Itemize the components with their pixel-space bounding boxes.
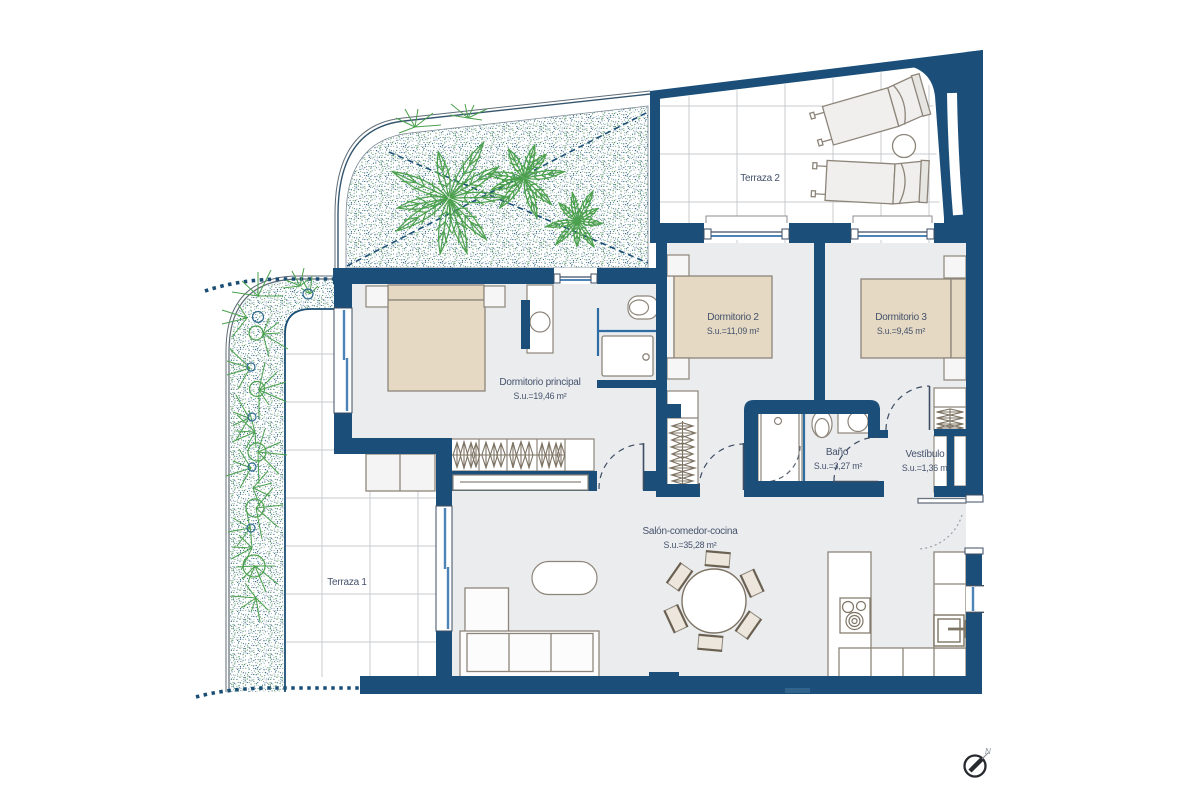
svg-text:Dormitorio 3: Dormitorio 3 <box>875 312 927 323</box>
svg-text:Terraza 2: Terraza 2 <box>740 173 780 184</box>
svg-text:Vestíbulo: Vestíbulo <box>906 449 946 460</box>
svg-text:S.u.=1,36 m²: S.u.=1,36 m² <box>902 463 950 473</box>
svg-text:S.u.=11,09 m²: S.u.=11,09 m² <box>707 326 760 336</box>
svg-text:Dormitorio 2: Dormitorio 2 <box>707 312 759 323</box>
svg-text:Baño: Baño <box>826 447 849 458</box>
svg-text:N: N <box>985 747 991 756</box>
svg-text:S.u.=9,45 m²: S.u.=9,45 m² <box>877 326 925 336</box>
svg-text:Dormitorio principal: Dormitorio principal <box>499 377 580 388</box>
svg-text:S.u.=3,27 m²: S.u.=3,27 m² <box>814 461 862 471</box>
svg-text:Salón-comedor-cocina: Salón-comedor-cocina <box>642 526 738 537</box>
svg-text:S.u.=19,46 m²: S.u.=19,46 m² <box>514 391 567 401</box>
svg-text:Terraza 1: Terraza 1 <box>327 577 367 588</box>
svg-text:S.u.=35,28 m²: S.u.=35,28 m² <box>664 540 717 550</box>
